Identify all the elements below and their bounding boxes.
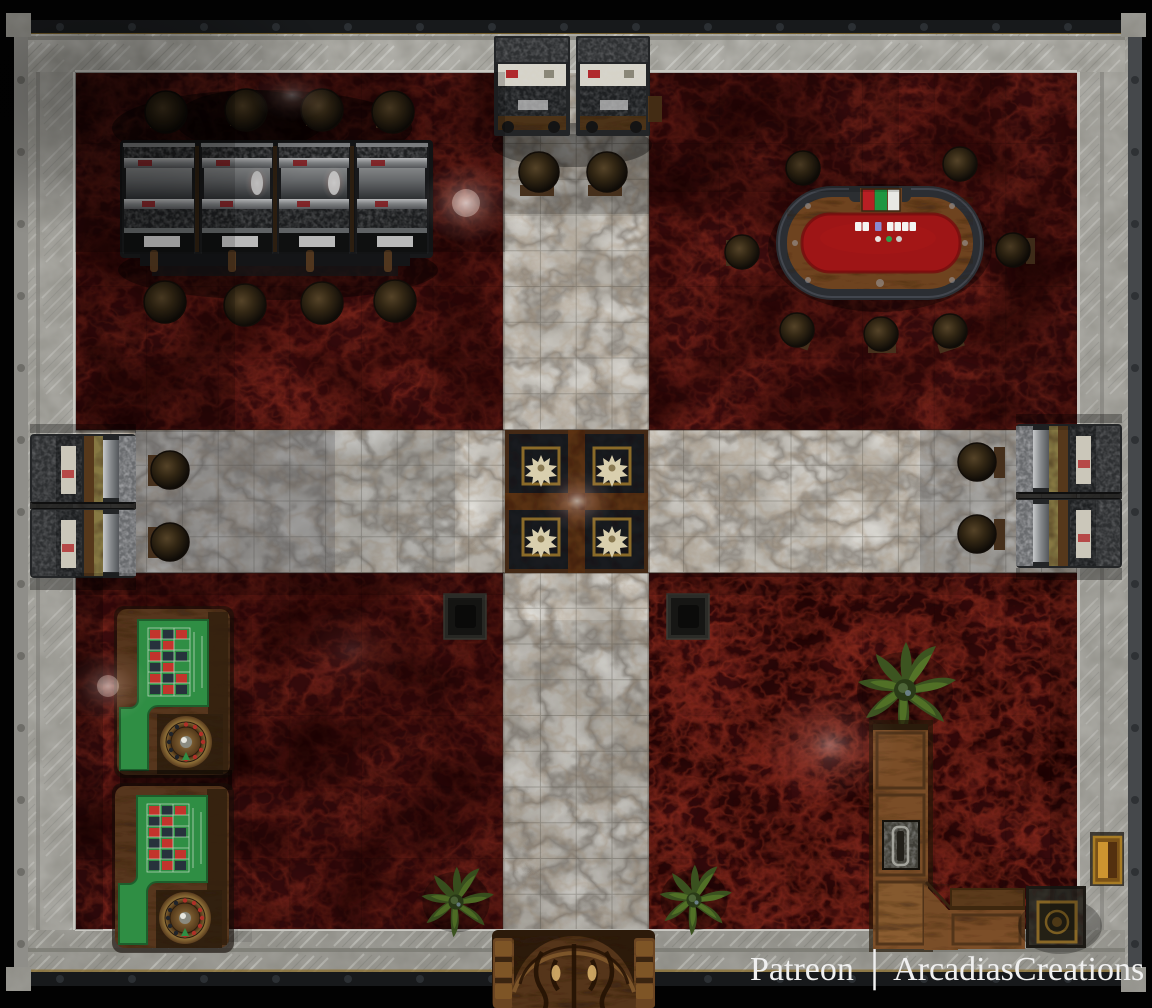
svg-text:Patreon │ ArcadiasCreations: Patreon │ ArcadiasCreations [750, 949, 1144, 991]
